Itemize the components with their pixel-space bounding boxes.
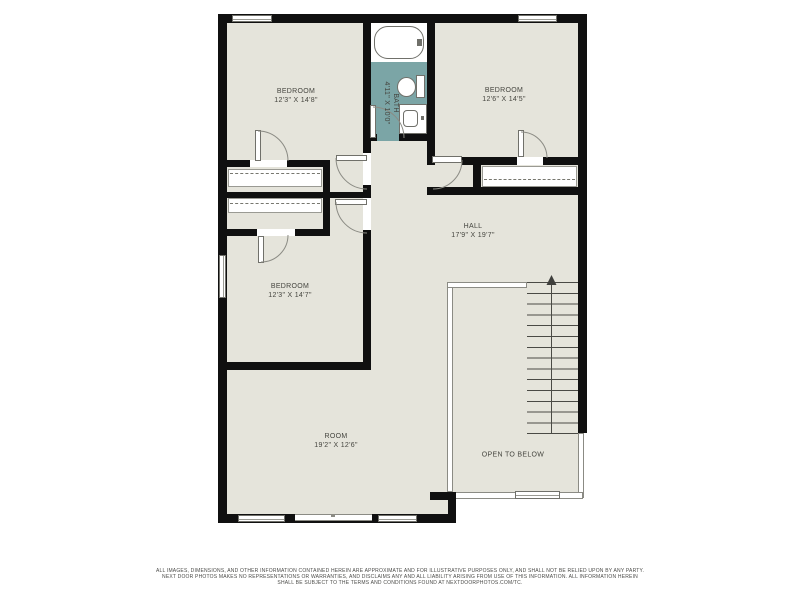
door-threshold [257, 229, 295, 236]
staircase [527, 282, 578, 434]
room-label-room: ROOM 19'2" X 12'6" [314, 432, 357, 450]
interior-wall [218, 160, 250, 167]
interior-wall [295, 229, 330, 236]
door-threshold [250, 160, 287, 167]
door-leaf [258, 236, 264, 263]
door-leaf [518, 130, 524, 157]
closet-shelf [482, 166, 577, 187]
interior-wall [218, 192, 367, 198]
window [238, 515, 285, 522]
room-name: OPEN TO BELOW [482, 451, 544, 460]
room-dims: 4'11" X 10'0" [382, 82, 391, 125]
closet-rod [230, 203, 320, 204]
door-threshold [517, 157, 543, 165]
room-name: HALL [451, 222, 494, 231]
disclaimer-text: SHALL BE SUBJECT TO THE TERMS AND CONDIT… [0, 580, 800, 586]
closet-rod [484, 179, 575, 180]
room-name: BEDROOM [482, 86, 525, 95]
interior-wall [543, 157, 578, 165]
interior-wall [399, 134, 435, 141]
window [518, 15, 557, 22]
interior-wall [427, 187, 578, 195]
sink-faucet-icon [421, 116, 424, 120]
exterior-wall-right [578, 14, 587, 433]
interior-wall [363, 230, 371, 370]
stair-railing [447, 282, 527, 288]
toilet-icon [416, 75, 425, 98]
sink-basin-icon [403, 110, 418, 127]
room-name: BEDROOM [268, 282, 311, 291]
room-label-open-to-below: OPEN TO BELOW [482, 451, 544, 460]
interior-wall [462, 157, 517, 165]
interior-wall [323, 160, 330, 236]
room-dims: 12'3" X 14'8" [274, 96, 317, 105]
door-leaf [335, 199, 367, 205]
room-dims: 19'2" X 12'6" [314, 441, 357, 450]
room-dims: 17'9" X 19'7" [451, 231, 494, 240]
room-dims: 12'3" X 14'7" [268, 291, 311, 300]
outside-patch [584, 433, 587, 498]
closet-shelf [228, 198, 322, 213]
room-name: BEDROOM [274, 87, 317, 96]
interior-wall [218, 362, 371, 370]
window [378, 515, 417, 522]
window [219, 255, 226, 298]
room-label-bedroom3: BEDROOM 12'3" X 14'7" [268, 282, 311, 300]
bathtub-faucet-icon [417, 39, 422, 46]
floor-plan-canvas: BEDROOM 12'3" X 14'8" BATH 4'11" X 10'0"… [0, 0, 800, 600]
room-label-hall: HALL 17'9" X 19'7" [451, 222, 494, 240]
door-leaf [432, 156, 462, 163]
closet-shelf [228, 169, 322, 187]
room-label-bedroom1: BEDROOM 12'3" X 14'8" [274, 87, 317, 105]
stair-railing [447, 282, 453, 492]
room-label-bedroom2: BEDROOM 12'6" X 14'5" [482, 86, 525, 104]
door-leaf [370, 105, 376, 138]
panel-center-tick [331, 514, 335, 517]
stair-direction-line [551, 282, 552, 433]
door-leaf [336, 155, 367, 161]
door-leaf [255, 130, 261, 161]
room-dims: 12'6" X 14'5" [482, 95, 525, 104]
lower-level-wall [578, 433, 584, 498]
room-name: ROOM [314, 432, 357, 441]
interior-wall [427, 23, 435, 165]
window [232, 15, 272, 22]
room-name: BATH [391, 82, 400, 125]
room-label-bath: BATH 4'11" X 10'0" [382, 82, 400, 125]
window [515, 491, 560, 499]
exterior-wall-step [448, 492, 456, 523]
interior-wall [218, 229, 257, 236]
closet-rod [230, 173, 320, 174]
